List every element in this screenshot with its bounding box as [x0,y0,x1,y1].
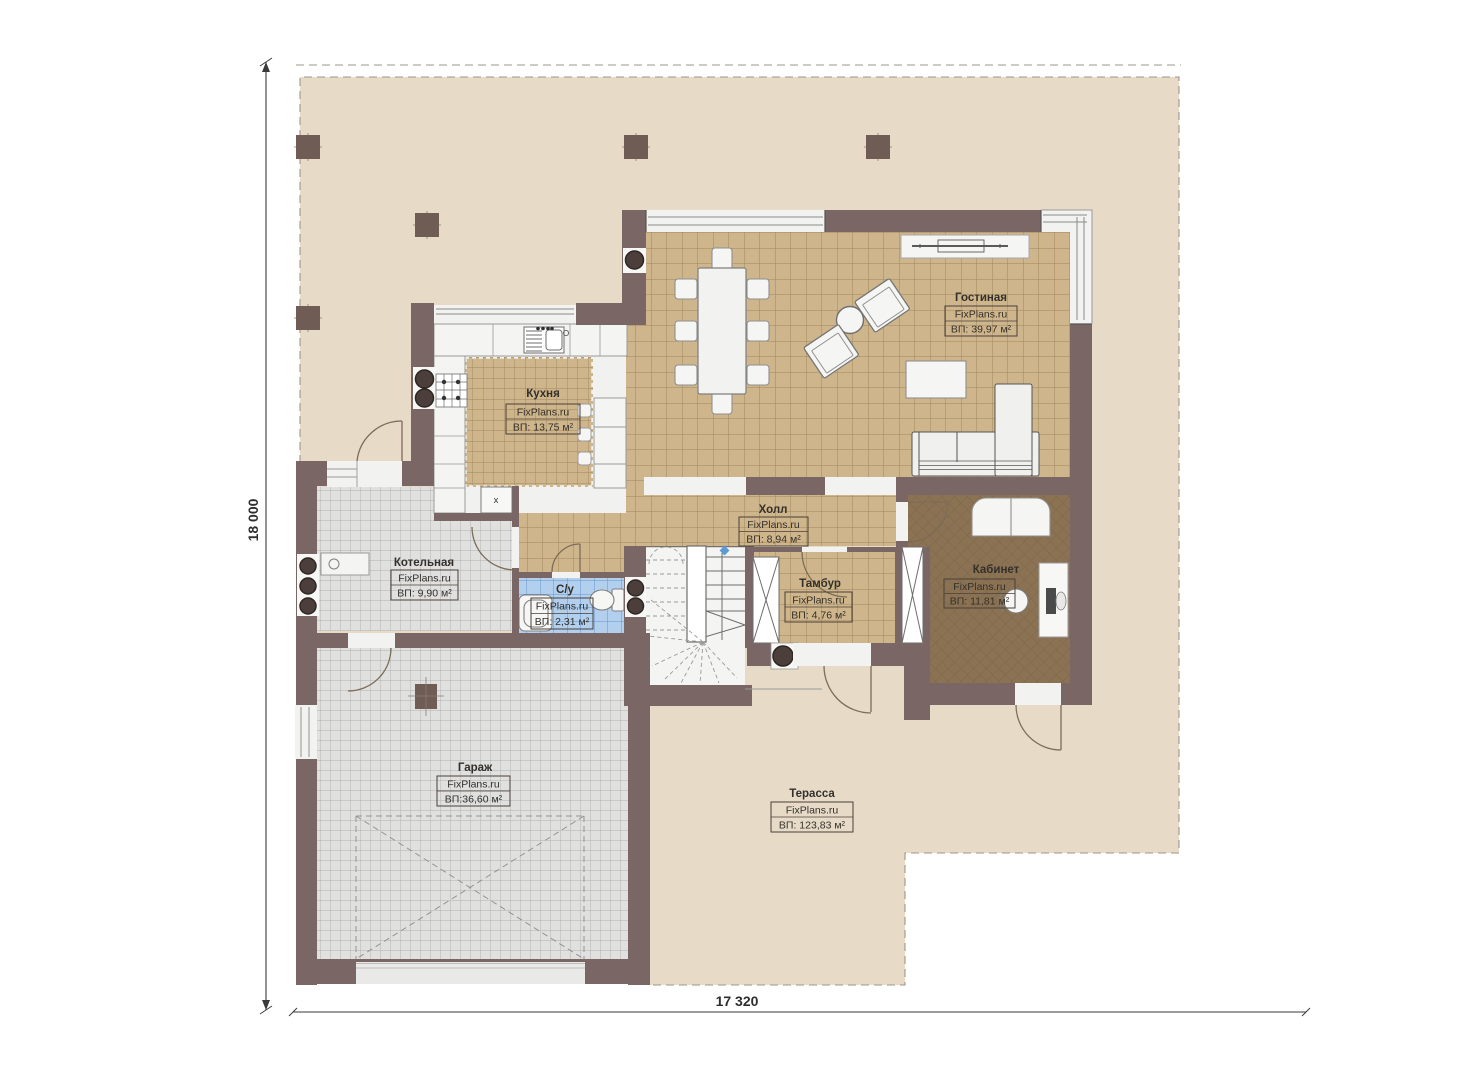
svg-text:18 000: 18 000 [245,498,261,541]
svg-text:Гараж: Гараж [458,762,493,774]
svg-text:ВП: 9,90 м²: ВП: 9,90 м² [397,588,452,600]
svg-text:ВП:36,60 м²: ВП:36,60 м² [445,794,503,806]
svg-text:ВП: 8,94 м²: ВП: 8,94 м² [746,534,801,546]
svg-text:Гостиная: Гостиная [955,292,1007,304]
svg-text:ВП: 11,81 м²: ВП: 11,81 м² [950,596,1010,608]
svg-text:17 320: 17 320 [716,993,759,1009]
svg-text:Тамбур: Тамбур [799,578,841,590]
svg-text:FixPlans.ru: FixPlans.ru [398,573,451,585]
svg-text:x: x [494,495,499,506]
svg-text:FixPlans.ru: FixPlans.ru [536,601,589,613]
svg-text:ВП: 13,75 м²: ВП: 13,75 м² [513,422,574,434]
svg-text:Терасса: Терасса [789,788,835,800]
svg-text:FixPlans.ru: FixPlans.ru [955,309,1008,321]
svg-text:ВП: 123,83 м²: ВП: 123,83 м² [779,820,846,832]
svg-text:FixPlans.ru: FixPlans.ru [792,595,845,607]
svg-text:ВП: 39,97 м²: ВП: 39,97 м² [951,324,1012,336]
svg-text:ВП: 2,31 м²: ВП: 2,31 м² [535,616,590,628]
svg-text:FixPlans.ru: FixPlans.ru [517,407,570,419]
svg-text:Холл: Холл [759,504,788,516]
svg-text:Котельная: Котельная [394,557,454,569]
svg-text:FixPlans.ru: FixPlans.ru [447,779,500,791]
svg-text:Кабинет: Кабинет [973,564,1020,576]
svg-text:С/у: С/у [556,584,575,596]
svg-text:ВП: 4,76 м²: ВП: 4,76 м² [791,610,846,622]
svg-text:FixPlans.ru: FixPlans.ru [786,805,839,817]
svg-text:FixPlans.ru: FixPlans.ru [953,581,1006,593]
svg-text:FixPlans.ru: FixPlans.ru [747,519,800,531]
svg-text:Кухня: Кухня [526,388,560,400]
